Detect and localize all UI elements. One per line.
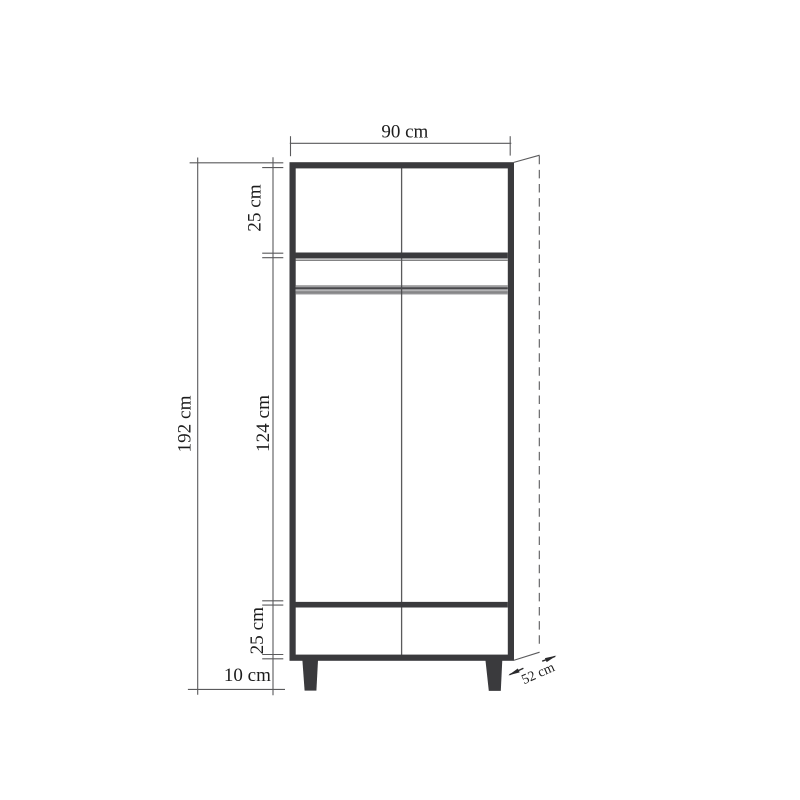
svg-text:192 cm: 192 cm [175,395,196,452]
svg-text:90 cm: 90 cm [381,121,428,142]
svg-text:10 cm: 10 cm [224,665,271,686]
svg-text:124 cm: 124 cm [253,395,274,452]
svg-text:25 cm: 25 cm [245,184,266,232]
svg-text:25 cm: 25 cm [247,607,268,655]
